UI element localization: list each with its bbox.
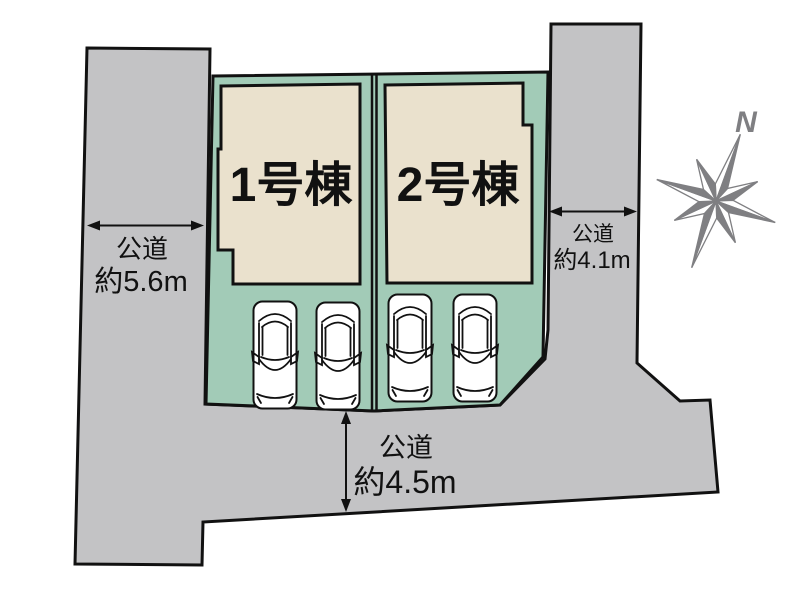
building-2-label: 2号棟 bbox=[397, 159, 521, 212]
car bbox=[452, 295, 498, 402]
road-label-bottom-line2: 約4.5m bbox=[353, 464, 456, 500]
car bbox=[387, 295, 433, 402]
car bbox=[315, 303, 361, 410]
road-label-left-line2: 約5.6m bbox=[94, 265, 187, 298]
car bbox=[252, 302, 298, 409]
plot-plan-drawing: 1号棟 2号棟 公道 約5.6m 公道 約4.1m 公道 約4.5m N bbox=[0, 0, 800, 599]
road-label-right-line1: 公道 bbox=[572, 223, 614, 246]
road-label-right-line2: 約4.1m bbox=[553, 247, 630, 274]
road-label-left-line1: 公道 bbox=[116, 234, 168, 264]
compass-rose-icon bbox=[657, 134, 775, 267]
north-label: N bbox=[735, 106, 758, 139]
building-1-label: 1号棟 bbox=[230, 159, 354, 212]
plot-plan: 1号棟 2号棟 公道 約5.6m 公道 約4.1m 公道 約4.5m N bbox=[0, 0, 800, 599]
road-label-bottom-line1: 公道 bbox=[379, 433, 433, 463]
